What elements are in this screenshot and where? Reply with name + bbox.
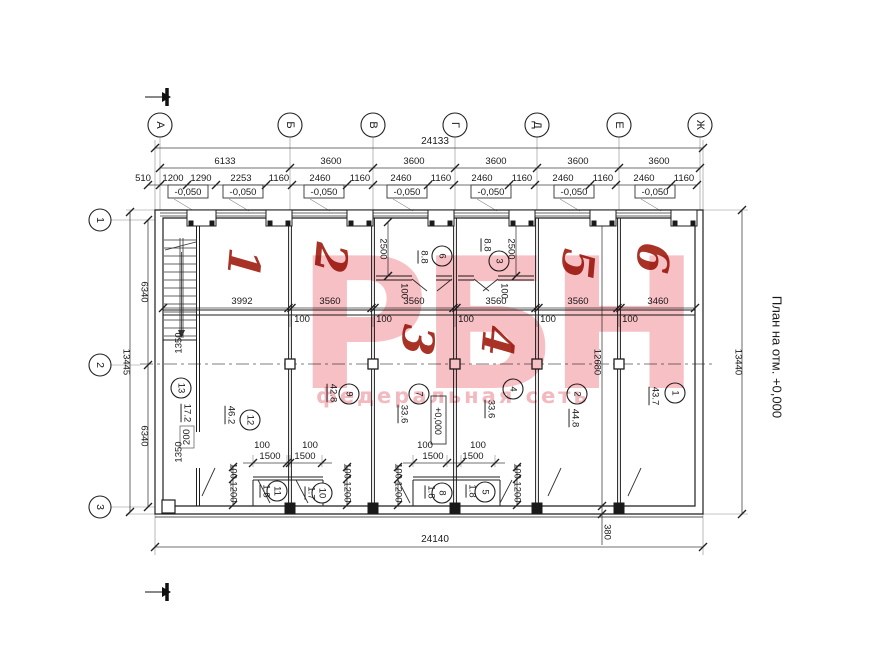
room-area: 33.6 bbox=[486, 400, 497, 419]
dim-label: 6340 bbox=[139, 281, 150, 302]
column-marker bbox=[614, 359, 624, 369]
axis-col-label: Б bbox=[284, 121, 296, 128]
vestibule-walls bbox=[376, 276, 534, 280]
column-marker bbox=[532, 359, 542, 369]
room-area: 8.8 bbox=[419, 250, 430, 263]
dim-label: 12680 bbox=[592, 349, 603, 375]
dim-label: 100 bbox=[376, 314, 392, 325]
dim-label: 3992 bbox=[231, 296, 252, 307]
column-footing bbox=[614, 503, 625, 514]
window bbox=[292, 213, 347, 216]
dim-label: 1350 bbox=[174, 332, 185, 353]
room-area: 1.7 bbox=[306, 486, 317, 499]
room-area: 17.2 bbox=[182, 404, 193, 423]
axis-col-label: Д bbox=[531, 121, 543, 129]
dim-label: -0,050 bbox=[478, 187, 505, 198]
room-area: 46.2 bbox=[226, 406, 237, 425]
pier-cap bbox=[210, 221, 215, 226]
dim-label: 2460 bbox=[552, 173, 573, 184]
room-number-label: 11 bbox=[272, 486, 283, 496]
plan-title: План на отм. +0,000 bbox=[770, 296, 785, 418]
dim-label: 2500 bbox=[506, 238, 517, 259]
pier-cap bbox=[367, 221, 372, 226]
vestibule-doors bbox=[412, 279, 498, 291]
dim-label: 2460 bbox=[390, 173, 411, 184]
dim-label: 1160 bbox=[512, 173, 532, 184]
window bbox=[373, 213, 428, 216]
dim-label: 2460 bbox=[471, 173, 492, 184]
dim-label: 6340 bbox=[139, 425, 150, 446]
dim-label: 380 bbox=[602, 524, 613, 540]
room-area: 1.8 bbox=[426, 485, 437, 498]
dim-label: 100 bbox=[417, 440, 433, 451]
dim-label: 1160 bbox=[269, 173, 289, 184]
window bbox=[160, 213, 187, 216]
dim-label: 1200 bbox=[228, 481, 239, 502]
room-number-label: 9 bbox=[344, 391, 355, 396]
dim-label: 1500 bbox=[294, 451, 315, 462]
dim-label: 3560 bbox=[567, 296, 588, 307]
section-marks bbox=[145, 88, 171, 601]
dim-label: 3600 bbox=[485, 156, 506, 167]
dim-label: 100 bbox=[540, 314, 556, 325]
dim-label: 1200 bbox=[162, 173, 183, 184]
pier-cap bbox=[189, 221, 194, 226]
dim-label: 1200 bbox=[512, 481, 523, 502]
room-number-label: 12 bbox=[245, 415, 256, 426]
dim-label: 2460 bbox=[633, 173, 654, 184]
dim-label: -0,050 bbox=[311, 187, 338, 198]
dim-label: 1160 bbox=[350, 173, 370, 184]
dim-label: 100 bbox=[458, 314, 474, 325]
room-number-label: 1 bbox=[670, 390, 681, 395]
dim-label: -0,050 bbox=[175, 187, 202, 198]
elevation-zero-label: +0,000 bbox=[433, 407, 443, 435]
dim-label: -0,050 bbox=[394, 187, 421, 198]
room-number-label: 10 bbox=[317, 488, 328, 499]
pier-cap bbox=[592, 221, 597, 226]
dim-label: 3600 bbox=[320, 156, 341, 167]
dim-label: 3600 bbox=[648, 156, 669, 167]
dim-label: -0,050 bbox=[230, 187, 257, 198]
dim-label: 100 bbox=[228, 463, 239, 479]
dim-label: 100 bbox=[393, 463, 404, 479]
dim-label: 13440 bbox=[733, 349, 744, 375]
dim-label: 1500 bbox=[259, 451, 280, 462]
pier-cap bbox=[268, 221, 273, 226]
dim-label: 3560 bbox=[319, 296, 340, 307]
pier-cap bbox=[448, 221, 453, 226]
dim-label: 100 bbox=[399, 283, 410, 299]
pier-cap bbox=[673, 221, 678, 226]
dim-label: 1160 bbox=[674, 173, 694, 184]
dim-label: 3600 bbox=[567, 156, 588, 167]
dim-label: 3460 bbox=[647, 296, 668, 307]
pier-cap bbox=[286, 221, 291, 226]
blueprint-canvas: АБВГДЕЖ1231317.21246.2942.8733.6433.6244… bbox=[0, 0, 870, 652]
wc-walls bbox=[253, 477, 500, 506]
room-number-label: 6 bbox=[437, 253, 448, 258]
dim-label: -0,050 bbox=[561, 187, 588, 198]
pier-cap bbox=[691, 221, 696, 226]
dim-label: 1290 bbox=[190, 173, 211, 184]
room-number-label: 7 bbox=[414, 391, 425, 396]
axis-row-label: 2 bbox=[94, 362, 106, 368]
pier-cap bbox=[511, 221, 516, 226]
dim-label: 1200 bbox=[342, 481, 353, 502]
elevation-leaders bbox=[174, 199, 661, 211]
axis-col-label: Ж bbox=[694, 120, 706, 130]
dim-label: -0,050 bbox=[642, 187, 669, 198]
room-number-label: 3 bbox=[494, 258, 505, 263]
dim-label: 100 bbox=[470, 440, 486, 451]
dim-label: 100 bbox=[254, 440, 270, 451]
column-marker bbox=[368, 359, 378, 369]
dim-label: 100 bbox=[342, 463, 353, 479]
window bbox=[216, 213, 266, 216]
room-area: 42.8 bbox=[328, 384, 339, 403]
dim-label: 1160 bbox=[431, 173, 451, 184]
room-number-label: 8 bbox=[437, 490, 448, 495]
dim-label: 100 bbox=[499, 283, 510, 299]
room-number-label: 2 bbox=[572, 391, 583, 396]
dim-label: 2253 bbox=[230, 173, 251, 184]
window bbox=[454, 213, 509, 216]
room-area: 1.8 bbox=[467, 484, 478, 497]
room-number-label: 5 bbox=[480, 489, 491, 494]
dim-label: 13445 bbox=[121, 349, 132, 375]
dim-label: 3600 bbox=[403, 156, 424, 167]
dim-label: 1200 bbox=[393, 481, 404, 502]
axis-col-label: В bbox=[367, 121, 379, 128]
column-footing bbox=[450, 503, 461, 514]
column-marker bbox=[285, 359, 295, 369]
floor-plan-svg: АБВГДЕЖ1231317.21246.2942.8733.6433.6244… bbox=[0, 0, 870, 652]
room-area: 8.8 bbox=[482, 238, 493, 251]
pier-cap bbox=[349, 221, 354, 226]
room-area: 33.6 bbox=[399, 405, 410, 424]
dim-label: 100 bbox=[294, 314, 310, 325]
window bbox=[616, 213, 671, 216]
corner-column bbox=[162, 500, 175, 513]
axis-col-label: А bbox=[154, 121, 166, 129]
window bbox=[535, 213, 590, 216]
pier-cap bbox=[529, 221, 534, 226]
dim-label: 24140 bbox=[421, 534, 449, 545]
room-area: 1.8 bbox=[261, 484, 272, 497]
dim-label: 24133 bbox=[421, 136, 449, 147]
axis-row-label: 3 bbox=[94, 504, 106, 510]
wall100-stubs bbox=[290, 316, 619, 327]
column-footing bbox=[285, 503, 296, 514]
column-marker bbox=[450, 359, 460, 369]
drawing-labels: 2413324140613336003600360036003600510120… bbox=[121, 136, 785, 545]
dim-label: 1350 bbox=[174, 441, 185, 462]
room-area: 44.8 bbox=[570, 409, 581, 428]
axis-row-label: 1 bbox=[94, 217, 106, 223]
dim-label: 100 bbox=[302, 440, 318, 451]
dim-label: 100 bbox=[512, 463, 523, 479]
axis-col-label: Г bbox=[449, 122, 461, 128]
dim-label: 100 bbox=[622, 314, 638, 325]
axis-col-label: Е bbox=[613, 121, 625, 128]
room-number-label: 13 bbox=[176, 383, 187, 394]
pier-cap bbox=[430, 221, 435, 226]
dim-label: 1500 bbox=[462, 451, 483, 462]
column-footing bbox=[532, 503, 543, 514]
pier-cap bbox=[610, 221, 615, 226]
room-number-label: 4 bbox=[508, 386, 519, 391]
dim-label: 2460 bbox=[309, 173, 330, 184]
dim-label: 1500 bbox=[422, 451, 443, 462]
stairs bbox=[164, 238, 197, 338]
dim-label: 510 bbox=[135, 173, 151, 184]
dim-label: 6133 bbox=[214, 156, 235, 167]
dim-label: 1160 bbox=[593, 173, 613, 184]
column-footing bbox=[368, 503, 379, 514]
dim-label: 2500 bbox=[378, 238, 389, 259]
room-area: 43.7 bbox=[650, 387, 661, 406]
